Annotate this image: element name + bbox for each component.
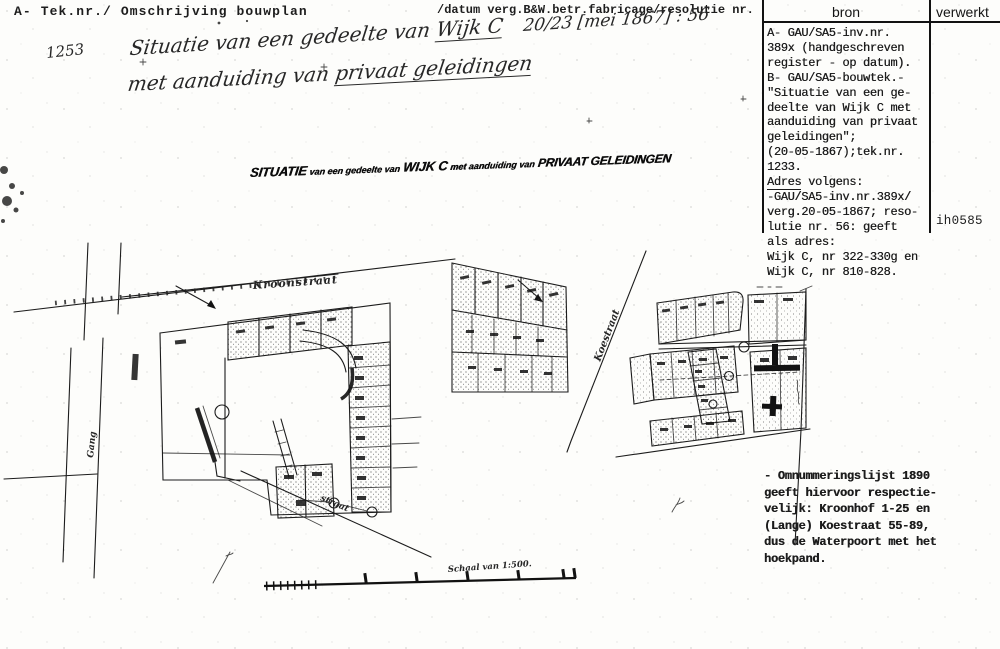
adres-label: Adres xyxy=(767,175,801,190)
table-border-left xyxy=(762,0,764,233)
stamp-van-een-gedeelte: van een gedeelte van xyxy=(309,164,401,177)
bron-adres-line: Adres volgens: xyxy=(767,175,863,189)
inventory-code: ih0585 xyxy=(936,214,983,228)
table-header-rule xyxy=(762,21,1000,23)
verwerkt-column-header: verwerkt xyxy=(936,4,989,20)
bron-notes-upper: A- GAU/SA5-inv.nr. 389x (handgeschreven … xyxy=(767,26,918,175)
stamp-privaat-geleidingen: PRIVAAT GELEIDINGEN xyxy=(537,151,672,170)
bron-column-header: bron xyxy=(832,4,860,20)
column-label-teknr-omschrijving: A- Tek.nr./ Omschrijving bouwplan xyxy=(14,4,308,19)
adres-rest: volgens: xyxy=(801,175,863,189)
title-wijk-underlined: Wijk C xyxy=(435,13,505,42)
archive-card-scan: Kroonstraat Gang straat Schaal van 1:500… xyxy=(0,0,1000,649)
table-border-middle xyxy=(929,0,931,233)
stamp-wijk-c: WIJK C xyxy=(402,158,448,175)
bron-notes-lower: -GAU/SA5-inv.nr.389x/ verg.20-05-1867; r… xyxy=(767,190,918,279)
stamp-met-aanduiding: met aanduiding van xyxy=(450,159,536,172)
renumbering-note: - Omnummeringslijst 1890 geeft hiervoor … xyxy=(764,468,937,568)
stamp-situatie: SITUATIE xyxy=(249,163,307,180)
